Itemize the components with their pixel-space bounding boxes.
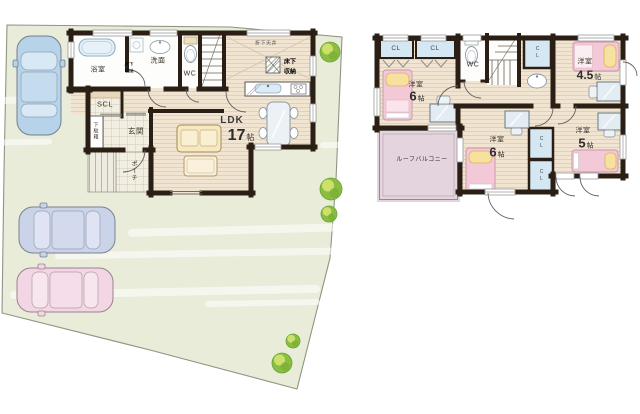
size-unit: 帖: [594, 72, 601, 82]
label-closet-side: CL: [535, 46, 540, 60]
kitchen-counter: [245, 82, 310, 96]
car-blue: [13, 36, 65, 135]
room-label-se: 洋室: [576, 128, 591, 135]
toilet: [184, 37, 197, 63]
label-line: 収納: [284, 67, 296, 76]
size-unit: 帖: [246, 132, 254, 143]
tree: [320, 42, 340, 62]
label-closet-a: CL: [391, 46, 400, 53]
washing-machine: [130, 38, 143, 52]
label-porch: ポーチ: [130, 161, 136, 182]
size-unit: 帖: [498, 150, 505, 160]
size-number: 17: [228, 127, 246, 145]
label-shoe-cabinet: 下駄箱: [93, 122, 98, 140]
bed-room-se: [572, 150, 618, 172]
room-nw-size: 6 帖: [409, 89, 424, 104]
size-number: 4.5: [577, 68, 594, 82]
size-number: 6: [489, 145, 496, 160]
label-closet-mid1: CL: [539, 136, 544, 150]
tree: [321, 206, 337, 222]
living-table: [184, 156, 217, 176]
bed-room-ne: [573, 42, 619, 71]
room-label-entrance: 玄関: [128, 127, 144, 135]
label-line: 床下: [125, 62, 134, 68]
room-label-wc-2f: WC: [467, 62, 480, 69]
label-closet-mid2: CL: [539, 169, 544, 183]
label-bath-underfloor: 床下 収納: [125, 62, 134, 75]
floor2-plan: [374, 35, 637, 219]
floorplan-drawing: [0, 0, 640, 414]
bathtub: [79, 39, 115, 56]
car-pink: [17, 264, 113, 316]
tree: [320, 178, 342, 200]
underfloor-storage-hatch: [266, 57, 280, 73]
porch-steps: [88, 152, 116, 192]
room-label-washroom: 洗面: [151, 58, 166, 65]
room-se-size: 5 帖: [578, 136, 593, 151]
room-label-ldk: LDK: [220, 116, 244, 126]
room-ne-size: 4.5 帖: [577, 68, 602, 82]
label-roof-balcony: ルーフバルコニー: [396, 157, 448, 163]
sofa: [177, 125, 221, 152]
ldk-size-label: 17 帖: [228, 127, 255, 145]
label-dropped-ceiling: 折下天井: [255, 42, 277, 47]
label-line: 収納: [125, 69, 134, 75]
bed-room-nw: [383, 70, 412, 120]
label-underfloor-storage: 床下 収納: [284, 57, 296, 76]
tree: [286, 334, 300, 348]
size-unit: 帖: [418, 94, 425, 104]
washbasin: [150, 41, 170, 54]
room-label-wc-1f: WC: [184, 71, 197, 78]
roof-balcony: [377, 128, 460, 202]
room-s-size: 6 帖: [489, 145, 504, 160]
size-unit: 帖: [587, 141, 594, 151]
label-line: 床下: [284, 57, 296, 66]
label-closet-b: CL: [430, 46, 439, 53]
tree: [272, 353, 292, 373]
size-number: 6: [409, 89, 416, 104]
toilet-2f: [465, 38, 478, 64]
size-number: 5: [578, 136, 585, 151]
car-lavender: [19, 203, 115, 257]
room-label-s: 洋室: [490, 137, 505, 144]
basin-2f: [528, 74, 547, 88]
room-label-nw: 洋室: [409, 82, 424, 89]
room-label-ne: 洋室: [578, 59, 593, 66]
floorplan-page: 浴室 床下 収納 洗面 WC 折下天井 床下 収納 SCL 下駄箱 玄関 ポーチ…: [0, 0, 640, 414]
room-label-scl: SCL: [97, 100, 113, 108]
room-label-bath: 浴室: [91, 67, 106, 74]
